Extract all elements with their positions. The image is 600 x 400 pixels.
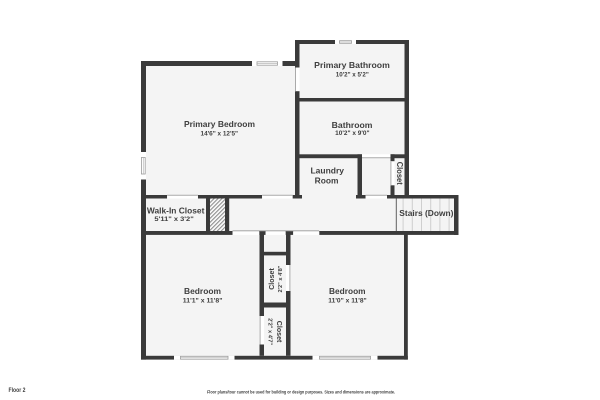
svg-text:Laundry: Laundry <box>311 166 345 176</box>
svg-text:Closet: Closet <box>269 268 276 290</box>
svg-text:Bedroom: Bedroom <box>184 286 221 296</box>
svg-text:2'2" x 4'7": 2'2" x 4'7" <box>266 318 272 345</box>
svg-text:14'6" x 12'5": 14'6" x 12'5" <box>201 131 239 138</box>
svg-text:11'0" x 11'8": 11'0" x 11'8" <box>328 298 366 305</box>
svg-text:Primary Bathroom: Primary Bathroom <box>314 60 390 70</box>
svg-text:Walk-In Closet: Walk-In Closet <box>147 205 205 215</box>
svg-text:Bedroom: Bedroom <box>329 286 366 296</box>
svg-text:5'11" x 3'2": 5'11" x 3'2" <box>154 216 193 223</box>
svg-text:Room: Room <box>315 176 339 186</box>
svg-text:Primary Bedroom: Primary Bedroom <box>184 119 255 129</box>
svg-text:Closet: Closet <box>275 321 282 343</box>
svg-text:2'2" x 4'8": 2'2" x 4'8" <box>278 265 284 292</box>
svg-text:10'2" x 9'0": 10'2" x 9'0" <box>335 130 369 137</box>
svg-text:Stairs (Down): Stairs (Down) <box>399 208 453 218</box>
svg-text:Bathroom: Bathroom <box>332 120 373 130</box>
svg-text:Floor 2: Floor 2 <box>9 388 27 394</box>
svg-text:10'2" x 5'2": 10'2" x 5'2" <box>336 71 369 78</box>
svg-text:11'1" x 11'8": 11'1" x 11'8" <box>183 298 223 305</box>
svg-text:Floor plans/tour cannot be use: Floor plans/tour cannot be used for buil… <box>207 389 395 394</box>
svg-text:Closet: Closet <box>395 162 404 185</box>
